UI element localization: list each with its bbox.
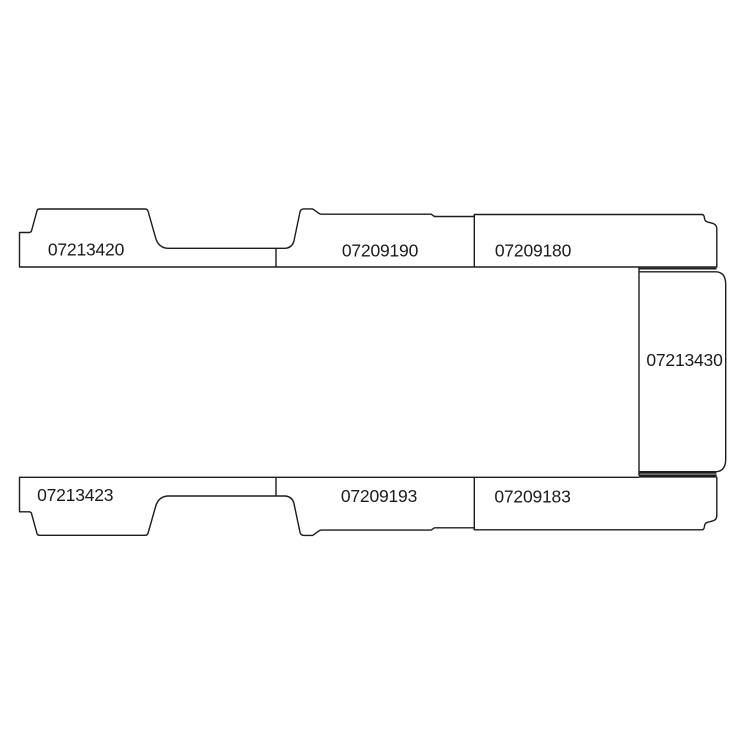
svg-text:07209190: 07209190 xyxy=(342,241,419,261)
svg-text:07213423: 07213423 xyxy=(37,485,113,505)
svg-text:07213430: 07213430 xyxy=(646,350,723,370)
svg-text:07209193: 07209193 xyxy=(341,486,417,506)
svg-text:07209180: 07209180 xyxy=(495,240,572,260)
svg-text:07209183: 07209183 xyxy=(494,487,570,507)
svg-text:07213420: 07213420 xyxy=(48,240,125,260)
